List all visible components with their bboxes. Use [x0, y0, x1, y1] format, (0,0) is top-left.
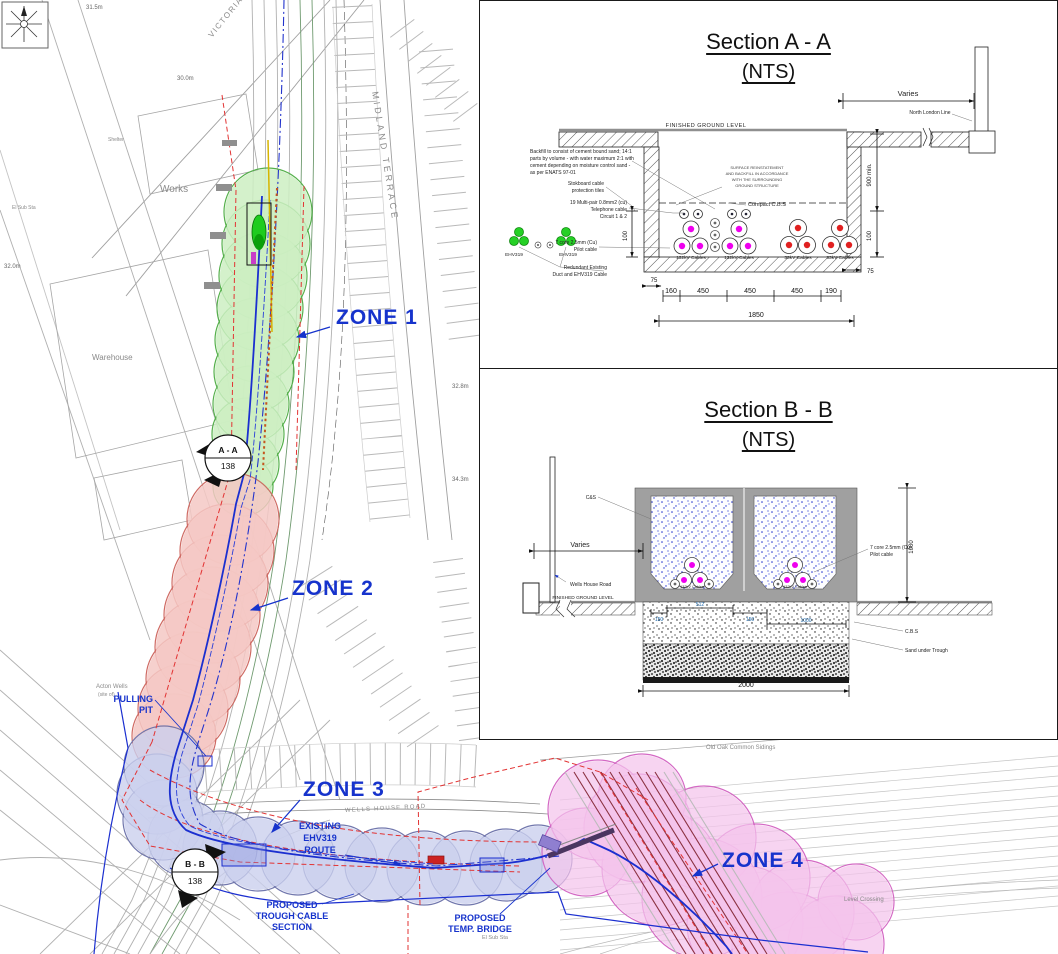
- dim-2000: 2000: [738, 682, 754, 689]
- sand-layer: [643, 644, 849, 680]
- marker-aa-label: A - A: [218, 445, 237, 455]
- backfill-note-4: as per ENATS 97-01: [530, 170, 576, 176]
- jointing-pit-box: [222, 844, 266, 866]
- victoria-road-label: VICTORIA ROAD: [207, 0, 266, 39]
- proposed-trough-label-2: TROUGH CABLE: [256, 911, 329, 921]
- acton-wells-siteof: (site of): [98, 692, 115, 698]
- temp-bridge-label-1: PROPOSED: [454, 913, 506, 923]
- cables-33-label-2: 33kV Cables: [826, 255, 854, 261]
- dim-1000-right: 1000: [909, 540, 915, 554]
- marker-aa-sheet: 138: [221, 461, 235, 471]
- dim-75-left: 75: [651, 278, 658, 284]
- fgl-label-a: FINISHED GROUND LEVEL: [666, 123, 747, 129]
- ehv319-label-2: EHV319: [559, 252, 577, 258]
- cables-132-label-2: 132kV Cables: [724, 255, 754, 261]
- pulling-pit-label-1: PULLING: [114, 694, 154, 704]
- dim-900min: 900 min.: [867, 163, 873, 186]
- telephone-label-2: Telephone cable: [591, 207, 628, 213]
- telephone-label-1: 19 Multi-pair 0.8mm2 (cu): [570, 200, 627, 206]
- cables-33-label-1: 33kV Cables: [784, 255, 812, 261]
- section-bb-drawing: 132kV Cables 132kV Cables: [480, 369, 1057, 739]
- midland-terrace-label: MIDLAND TERRACE: [370, 91, 400, 222]
- trough-cavity-left: [651, 496, 733, 589]
- el-sub-sta-label: El Sub Sta: [482, 935, 509, 941]
- dim-450-2: 450: [744, 288, 756, 295]
- dim-150-left: 150: [655, 617, 664, 623]
- dim-450-1: 450: [697, 288, 709, 295]
- surface-note-3: WITH THE SURROUNDING: [732, 177, 783, 182]
- section-aa-panel: Section A - A (NTS): [479, 0, 1058, 369]
- trough-cavity-right: [754, 496, 836, 589]
- level-crossing-label: Level Crossing: [844, 897, 884, 903]
- varies-dim-a: Varies: [898, 89, 919, 98]
- dim-100-left: 100: [623, 230, 629, 241]
- marker-bb-sheet: 138: [188, 876, 202, 886]
- telephone-label-3: Circuit 1 & 2: [600, 214, 627, 220]
- zone-2-label: ZONE 2: [292, 577, 374, 600]
- spot-height-320: 32.0m: [4, 264, 21, 270]
- cable-group-132kv-1: [674, 210, 708, 255]
- compass-rose-icon: [2, 2, 48, 48]
- surface-note-1: SURFACE REINSTATEMENT: [730, 165, 784, 170]
- cable-group-132kv-2: [722, 210, 756, 255]
- spot-height-328: 32.8m: [452, 384, 469, 390]
- spot-height-300: 30.0m: [177, 76, 194, 82]
- pilot-label-1: 7 core 2.5mm (Cu): [555, 240, 597, 246]
- shelter-label: Shelter: [108, 137, 124, 143]
- backfill-note-3: cement depending on moisture control san…: [530, 163, 631, 169]
- dim-1850: 1850: [748, 312, 764, 319]
- pit-box-east: [480, 858, 504, 872]
- section-bb-panel: Section B - B (NTS): [479, 368, 1058, 740]
- dim-1000-inner: 1000: [800, 618, 811, 624]
- pilot-cable-circles: [711, 219, 720, 252]
- marker-bb-label: B - B: [185, 859, 205, 869]
- wells-house-road-ref: Wells House Road: [570, 582, 612, 588]
- trough-cables-label-left: 132kV Cables: [680, 585, 704, 589]
- zone-1-label: ZONE 1: [336, 306, 418, 329]
- proposed-trough-label-1: PROPOSED: [266, 900, 318, 910]
- compact-cbs-label: Compact C.B.S: [748, 202, 786, 208]
- roadside-post: [550, 457, 555, 602]
- redundant-label-2: Duct and EHV319 Cable: [553, 272, 608, 278]
- spot-height-315: 31.5m: [86, 5, 103, 11]
- north-london-line-structure: [975, 47, 988, 133]
- spot-height-343: 34.3m: [452, 477, 469, 483]
- zone-4-area: [542, 754, 894, 954]
- cables-132-label-1: 132kV Cables: [676, 255, 706, 261]
- pilot-label-2: Pilot cable: [574, 247, 597, 253]
- acton-wells-label: Acton Wells: [96, 684, 128, 690]
- dim-512: 512: [696, 602, 705, 608]
- works-label: Works: [160, 184, 188, 195]
- el-sub-sta-label-2: El Sub Sta: [12, 205, 36, 211]
- redundant-label-1: Redundant Existing: [564, 265, 608, 271]
- trough-cables-label-right: 132kV Cables: [783, 585, 807, 589]
- existing-route-label-1: EXISTING: [299, 821, 341, 831]
- zone-3-label: ZONE 3: [303, 778, 385, 801]
- sand-under-trough-label: Sand under Trough: [905, 648, 948, 654]
- varies-dim-b: Varies: [570, 542, 590, 549]
- fgl-label-b: FINISHED GROUND LEVEL: [552, 595, 614, 601]
- dim-450-3: 450: [791, 288, 803, 295]
- roadside-block: [523, 583, 539, 613]
- existing-route-label-2: EHV319: [303, 833, 337, 843]
- pulling-pit-label-2: PIT: [139, 705, 154, 715]
- stokboard-label-1: Stokboard cable: [568, 181, 604, 187]
- red-marker-box: [428, 856, 444, 864]
- backfill-note-1: Backfill to consist of cement bound sand…: [530, 149, 632, 155]
- cs-label: C&S: [586, 495, 597, 501]
- north-london-line-label: North London Line: [909, 110, 950, 116]
- section-aa-drawing: FINISHED GROUND LEVEL Varies North Londo…: [480, 1, 1057, 368]
- cable-group-33kv-1: [781, 220, 816, 254]
- pilot-cable-label-1: 7 core 2.5mm (Cu): [870, 545, 912, 551]
- surface-note-2: AND BACKFILL IN ACCORDANCE: [726, 171, 789, 176]
- dim-75-right: 75: [867, 269, 874, 275]
- ehv319-label-1: EHV319: [505, 252, 523, 258]
- dim-150-right: 150: [746, 617, 755, 623]
- proposed-trough-label-3: SECTION: [272, 922, 312, 932]
- surface-note-4: GROUND STRUCTURE: [735, 183, 779, 188]
- cbs-label: C.B.S: [905, 629, 919, 635]
- stokboard-label-2: protection tiles: [572, 188, 605, 194]
- road-hatch-right: [857, 603, 992, 615]
- pilot-cable-label-2: Pilot cable: [870, 552, 893, 558]
- existing-route-label-3: ROUTE: [304, 845, 336, 855]
- dim-160: 160: [665, 288, 677, 295]
- backfill-note-2: parts by volume - with water maximum 2:1…: [530, 156, 634, 162]
- road-hatch-left: [536, 603, 635, 615]
- warehouse-label: Warehouse: [92, 353, 133, 362]
- wells-house-road-label: WELLS HOUSE ROAD: [345, 804, 427, 814]
- dim-190: 190: [825, 288, 837, 295]
- temp-bridge-label-2: TEMP. BRIDGE: [448, 924, 512, 934]
- drawing-sheet: A - A 138 B - B 138 VICTORIA ROAD MIDLAN…: [0, 0, 1058, 954]
- dim-100-right: 100: [867, 230, 873, 241]
- zone-4-label: ZONE 4: [722, 849, 804, 872]
- old-oak-label: Old Oak Common Sidings: [706, 745, 775, 751]
